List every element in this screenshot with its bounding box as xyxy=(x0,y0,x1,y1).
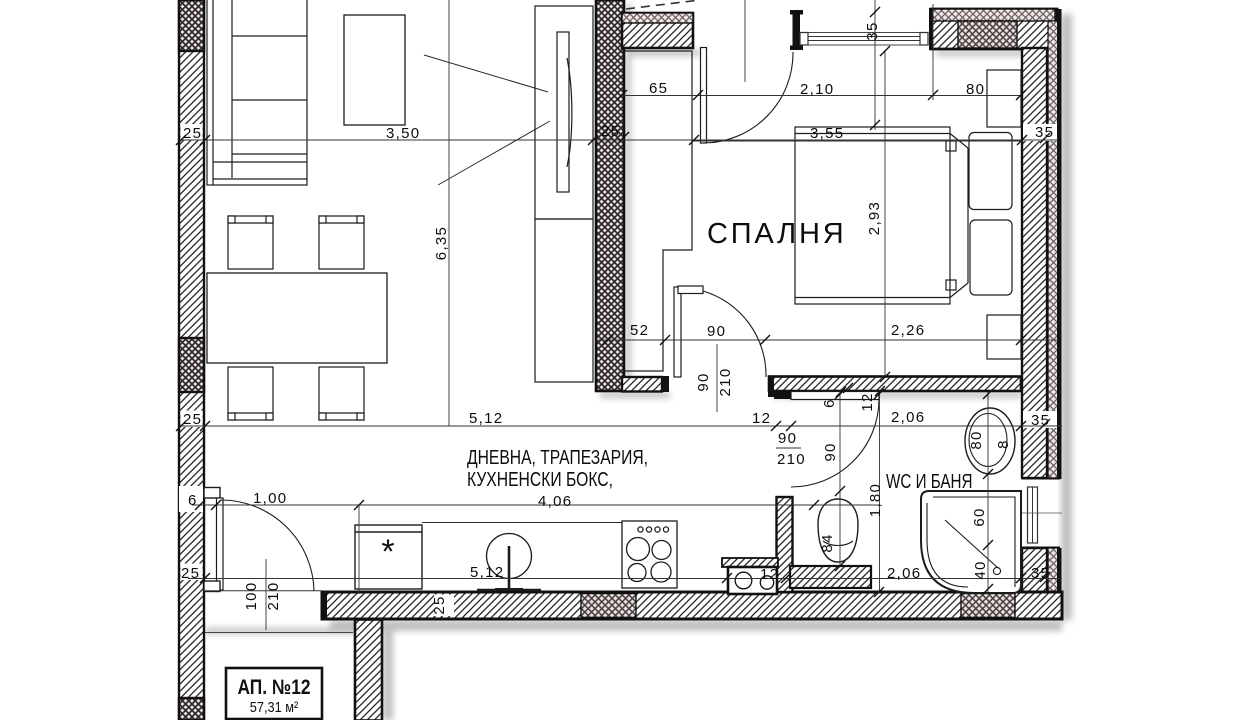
svg-text:25: 25 xyxy=(601,123,620,140)
svg-text:25: 25 xyxy=(183,125,202,142)
svg-text:2,10: 2,10 xyxy=(800,81,834,98)
svg-text:52: 52 xyxy=(630,322,649,339)
svg-text:2,93: 2,93 xyxy=(866,201,883,235)
svg-text:4,06: 4,06 xyxy=(538,493,572,510)
svg-text:100: 100 xyxy=(243,582,260,611)
svg-text:2,06: 2,06 xyxy=(891,409,925,426)
svg-text:6: 6 xyxy=(821,398,838,408)
svg-text:6,35: 6,35 xyxy=(433,226,450,260)
svg-text:1,80: 1,80 xyxy=(867,483,884,517)
svg-text:КУХНЕНСКИ БОКС,: КУХНЕНСКИ БОКС, xyxy=(467,468,613,490)
svg-text:12: 12 xyxy=(760,566,779,583)
svg-text:35: 35 xyxy=(1031,565,1050,582)
svg-text:5,12: 5,12 xyxy=(469,410,503,427)
svg-text:2,26: 2,26 xyxy=(891,322,925,339)
svg-text:90: 90 xyxy=(822,442,839,461)
svg-text:35: 35 xyxy=(864,21,881,40)
svg-text:WC И БАНЯ: WC И БАНЯ xyxy=(886,470,973,493)
svg-text:АП. №12: АП. №12 xyxy=(237,677,310,700)
svg-text:12: 12 xyxy=(859,392,876,411)
svg-text:210: 210 xyxy=(777,451,806,468)
svg-text:8: 8 xyxy=(995,439,1012,449)
svg-text:35: 35 xyxy=(1035,124,1054,141)
svg-text:12: 12 xyxy=(752,410,771,427)
svg-text:90: 90 xyxy=(778,430,797,447)
svg-text:80: 80 xyxy=(968,430,985,449)
svg-text:90: 90 xyxy=(695,372,712,391)
svg-text:90: 90 xyxy=(707,323,726,340)
svg-text:25: 25 xyxy=(431,595,448,614)
svg-text:40: 40 xyxy=(972,560,989,579)
svg-text:СПАЛНЯ: СПАЛНЯ xyxy=(707,218,846,250)
svg-text:2,06: 2,06 xyxy=(887,565,921,582)
svg-text:57,31 м²: 57,31 м² xyxy=(250,698,299,715)
svg-text:*: * xyxy=(381,533,394,571)
svg-text:65: 65 xyxy=(649,80,668,97)
svg-text:210: 210 xyxy=(265,582,282,611)
svg-text:25: 25 xyxy=(181,565,200,582)
svg-text:84: 84 xyxy=(819,533,836,552)
svg-text:80: 80 xyxy=(966,81,985,98)
svg-text:60: 60 xyxy=(971,507,988,526)
svg-text:35: 35 xyxy=(1031,412,1050,429)
svg-text:3,55: 3,55 xyxy=(810,125,844,142)
svg-text:25: 25 xyxy=(183,411,202,428)
svg-text:3,50: 3,50 xyxy=(386,125,420,142)
svg-text:210: 210 xyxy=(717,368,734,397)
svg-text:1,00: 1,00 xyxy=(253,490,287,507)
svg-text:6: 6 xyxy=(188,492,198,509)
svg-text:5,12: 5,12 xyxy=(470,564,504,581)
svg-text:ДНЕВНА, ТРАПЕЗАРИЯ,: ДНЕВНА, ТРАПЕЗАРИЯ, xyxy=(467,446,648,468)
